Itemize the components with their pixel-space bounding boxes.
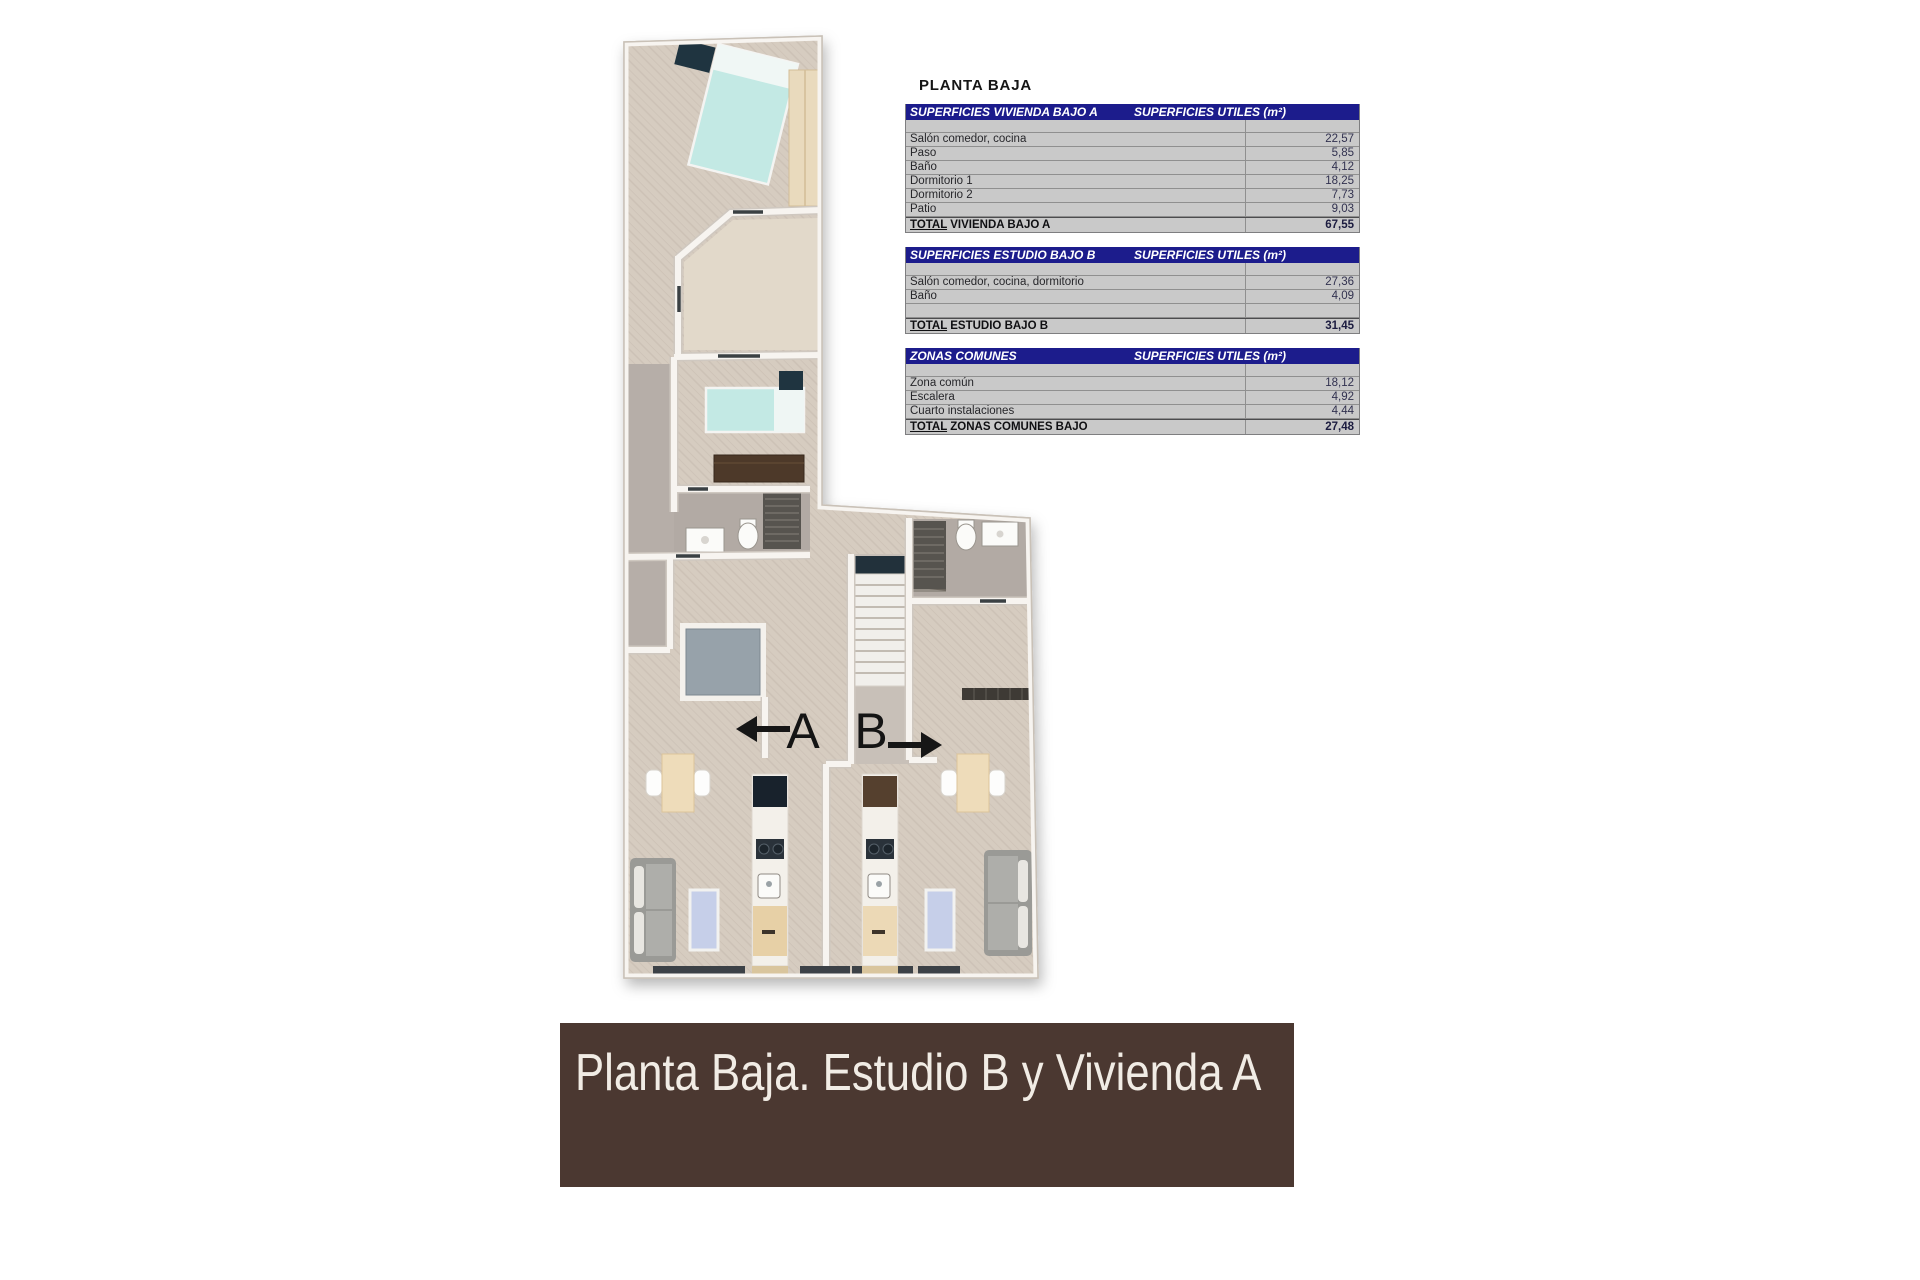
table-row: Baño4,09	[906, 290, 1359, 304]
patio-square	[680, 623, 766, 701]
page: A B PLANTA BAJA SUPERFICIES VIVIENDA BAJ…	[0, 0, 1920, 1280]
table-vivienda-a: SUPERFICIES VIVIENDA BAJO A SUPERFICIES …	[905, 104, 1360, 233]
bathroom-a-shower	[763, 492, 801, 549]
table-body: Salón comedor, cocina22,57Paso5,85Baño4,…	[906, 120, 1359, 232]
table-header: ZONAS COMUNES SUPERFICIES UTILES (m²)	[906, 348, 1359, 364]
area-summary: PLANTA BAJA SUPERFICIES VIVIENDA BAJO A …	[905, 74, 1360, 435]
table-row: Dormitorio 118,25	[906, 175, 1359, 189]
sofa-b	[984, 850, 1032, 956]
table-body: Zona común18,12Escalera4,92Cuarto instal…	[906, 364, 1359, 434]
table-header: SUPERFICIES VIVIENDA BAJO A SUPERFICIES …	[906, 104, 1359, 120]
table-row: Patio9,03	[906, 203, 1359, 217]
table-row	[906, 263, 1359, 276]
rug-b	[926, 890, 954, 950]
kitchen-island-b	[862, 774, 898, 966]
table-body: Salón comedor, cocina, dormitorio27,36Ba…	[906, 263, 1359, 333]
table-row	[906, 304, 1359, 318]
caption-text: Planta Baja. Estudio B y Vivienda A	[575, 1045, 1261, 1101]
bathroom-b-shower	[912, 521, 946, 589]
staircase	[854, 556, 907, 686]
bathroom-b-sink	[982, 522, 1018, 546]
table-title: SUPERFICIES ESTUDIO BAJO B	[906, 248, 1095, 262]
table-zonas-comunes: ZONAS COMUNES SUPERFICIES UTILES (m²) Zo…	[905, 348, 1360, 435]
sofa-a	[630, 858, 676, 962]
plan-title: PLANTA BAJA	[919, 77, 1360, 92]
table-row: Cuarto instalaciones4,44	[906, 405, 1359, 419]
bathroom-a-sink	[686, 528, 724, 552]
wardrobe-1	[789, 70, 821, 206]
sideboard	[962, 688, 1034, 700]
table-row	[906, 120, 1359, 133]
bathroom-b-toilet	[956, 520, 976, 550]
table-row: Escalera4,92	[906, 391, 1359, 405]
table-row: TOTAL ESTUDIO BAJO B31,45	[906, 318, 1359, 333]
bathroom-a-toilet	[738, 519, 758, 549]
table-estudio-b: SUPERFICIES ESTUDIO BAJO B SUPERFICIES U…	[905, 247, 1360, 334]
table-row: TOTAL VIVIENDA BAJO A67,55	[906, 217, 1359, 232]
table-units-header: SUPERFICIES UTILES (m²)	[1134, 247, 1286, 263]
caption-banner: Planta Baja. Estudio B y Vivienda A	[560, 1023, 1294, 1187]
table-row: Baño4,12	[906, 161, 1359, 175]
table-row: Zona común18,12	[906, 377, 1359, 391]
table-units-header: SUPERFICIES UTILES (m²)	[1134, 104, 1286, 120]
table-row: Dormitorio 27,73	[906, 189, 1359, 203]
table-row: Paso5,85	[906, 147, 1359, 161]
table-row: TOTAL ZONAS COMUNES BAJO27,48	[906, 419, 1359, 434]
table-row: Salón comedor, cocina22,57	[906, 133, 1359, 147]
table-title: ZONAS COMUNES	[906, 349, 1017, 363]
wardrobe-2	[714, 455, 804, 482]
unit-a-label: A	[786, 703, 820, 759]
table-units-header: SUPERFICIES UTILES (m²)	[1134, 348, 1286, 364]
table-row	[906, 364, 1359, 377]
rug-a	[690, 890, 718, 950]
kitchen-island-a	[752, 774, 788, 966]
table-header: SUPERFICIES ESTUDIO BAJO B SUPERFICIES U…	[906, 247, 1359, 263]
table-title: SUPERFICIES VIVIENDA BAJO A	[906, 105, 1098, 119]
table-row: Salón comedor, cocina, dormitorio27,36	[906, 276, 1359, 290]
unit-b-label: B	[854, 703, 887, 759]
